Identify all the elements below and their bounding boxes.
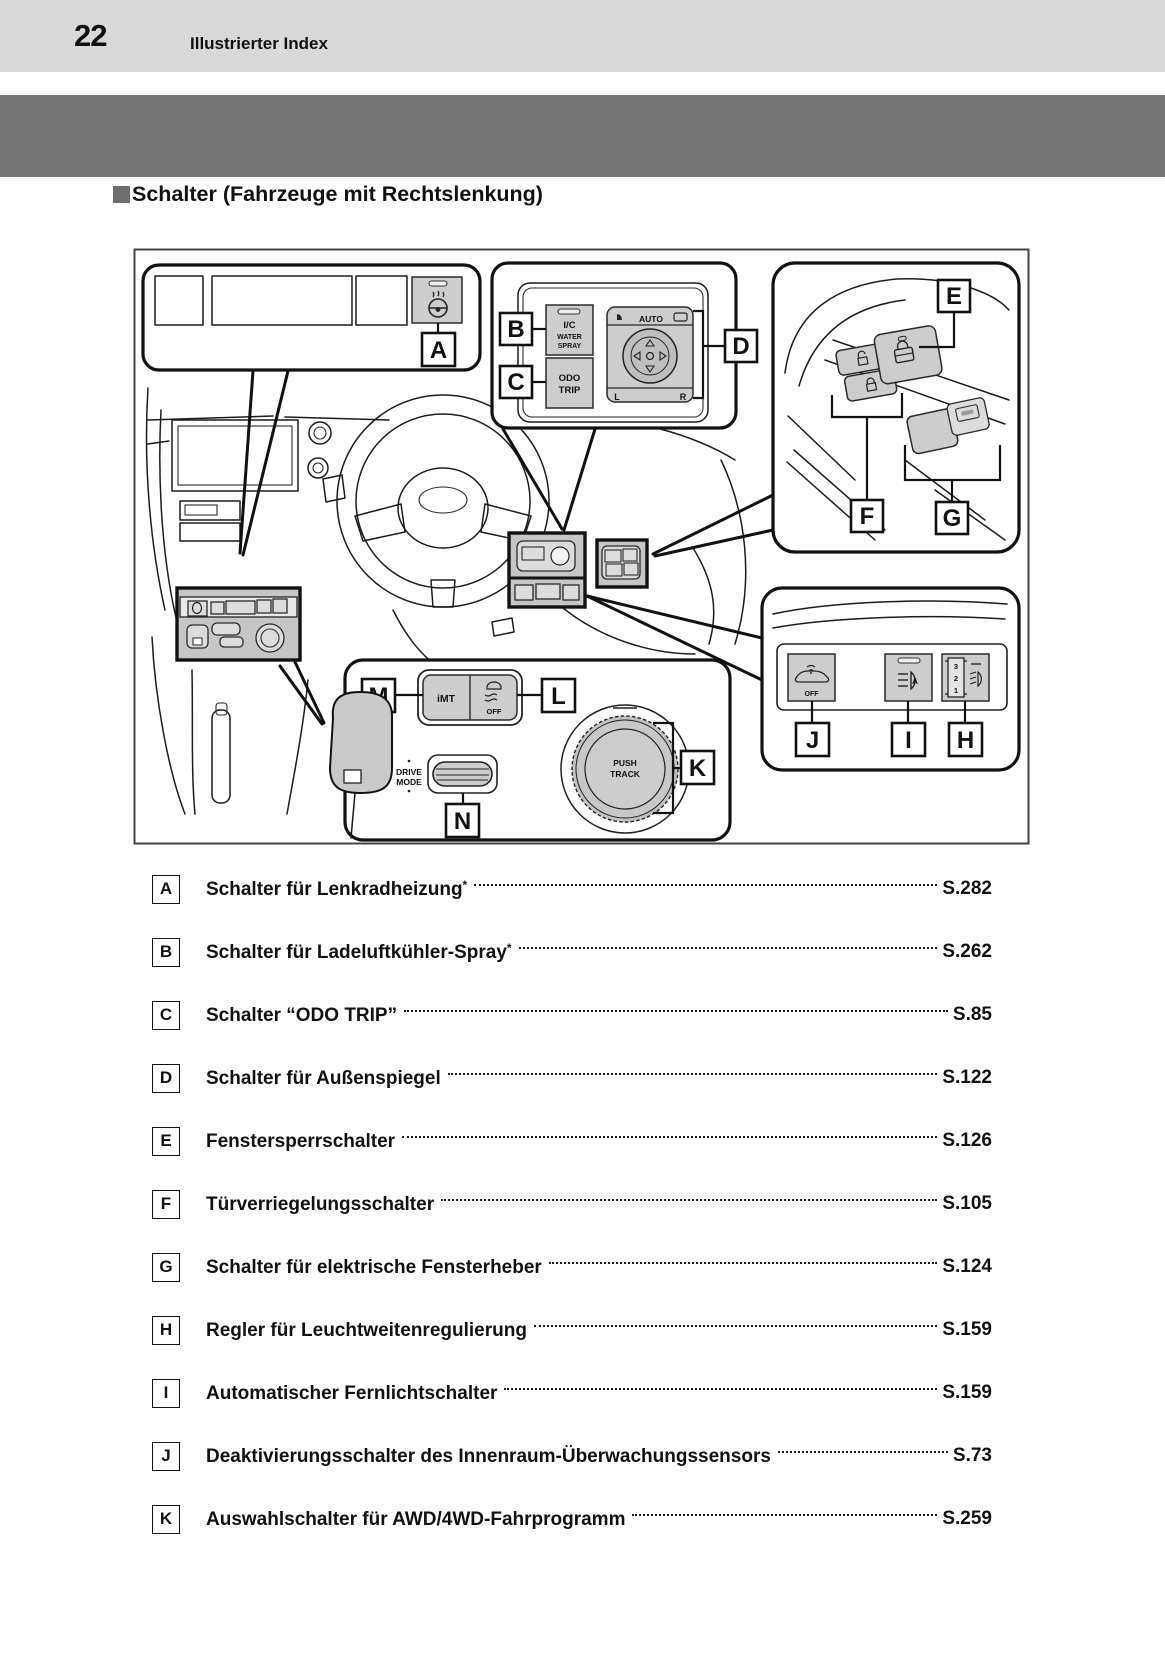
svg-text:2: 2 — [954, 674, 958, 683]
callout-label-K: K — [681, 751, 714, 784]
manual-page: 22 Illustrierter Index Schalter (Fahrzeu… — [0, 0, 1165, 1653]
callout-label-L: L — [542, 679, 575, 712]
dot-leader — [448, 1072, 938, 1075]
item-label: Schalter für elektrische Fensterheber — [206, 1257, 542, 1278]
svg-text:ODO: ODO — [559, 373, 581, 384]
callout-label-H: H — [949, 723, 982, 756]
dot-leader — [404, 1009, 948, 1012]
auto-high-beam-switch: A — [885, 654, 932, 701]
dot-leader — [402, 1135, 937, 1138]
console-climate-panel — [177, 588, 300, 660]
item-page-ref: S.105 — [942, 1193, 992, 1215]
intrusion-sensor-off-switch: OFF — [788, 654, 835, 701]
callout-label-F: F — [851, 500, 883, 532]
item-label: Schalter “ODO TRIP” — [206, 1005, 397, 1026]
callout-box-steering-right: I/C WATER SPRAY ODO TRIP AUTO — [492, 263, 757, 428]
indicator-lamp — [429, 281, 447, 286]
svg-text:A: A — [912, 677, 918, 686]
column-switch-panel-left — [509, 533, 585, 607]
item-page-ref: S.124 — [942, 1256, 992, 1278]
svg-text:L: L — [614, 392, 620, 402]
list-item: G Schalter für elektrische Fensterheber … — [152, 1250, 992, 1284]
callout-box-instrument-panel: A — [143, 265, 480, 370]
item-key: G — [152, 1253, 180, 1282]
callout-label-J: J — [796, 723, 829, 756]
svg-text:1: 1 — [954, 686, 958, 695]
item-label: Schalter für Ladeluftkühler-Spray — [206, 942, 507, 963]
callout-box-lower-dash: OFF A 3 2 1 — [762, 588, 1019, 770]
svg-text:H: H — [957, 727, 974, 754]
callout-label-A: A — [422, 333, 455, 366]
item-page-ref: S.262 — [942, 941, 992, 963]
switch-location-diagram: A I/C WATER SPRAY ODO TRIP — [133, 248, 1030, 848]
item-label: Deaktivierungsschalter des Innenraum-Übe… — [206, 1446, 771, 1467]
item-label: Automatischer Fernlichtschalter — [206, 1383, 497, 1404]
mirror-control-switch: AUTO L R — [607, 307, 693, 402]
list-item: D Schalter für Außenspiegel S.122 — [152, 1061, 992, 1095]
item-key: K — [152, 1505, 180, 1534]
svg-text:AUTO: AUTO — [639, 314, 663, 324]
svg-text:J: J — [806, 727, 819, 754]
section-heading-text: Schalter (Fahrzeuge mit Rechtslenkung) — [132, 182, 543, 207]
item-page-ref: S.159 — [942, 1319, 992, 1341]
callout-box-door-panel: E F G — [773, 263, 1019, 552]
item-key: H — [152, 1316, 180, 1345]
item-page-ref: S.259 — [942, 1508, 992, 1530]
callout-label-B: B — [500, 313, 532, 345]
svg-text:F: F — [860, 503, 875, 530]
svg-text:SPRAY: SPRAY — [558, 343, 582, 350]
item-page-ref: S.126 — [942, 1130, 992, 1152]
callout-box-center-console: iMT OFF M L DRIVE MODE — [345, 660, 730, 840]
callout-label-E: E — [938, 280, 970, 312]
item-key: D — [152, 1064, 180, 1093]
item-page-ref: S.85 — [953, 1004, 992, 1026]
list-item: A Schalter für Lenkradheizung* S.282 — [152, 872, 992, 906]
item-page-ref: S.122 — [942, 1067, 992, 1089]
item-key: A — [152, 875, 180, 904]
list-item: H Regler für Leuchtweitenregulierung S.1… — [152, 1313, 992, 1347]
dot-leader — [441, 1198, 937, 1201]
svg-text:I/C: I/C — [563, 320, 575, 331]
section-title: Illustrierter Index — [190, 34, 328, 54]
steering-heater-switch — [412, 277, 462, 323]
square-bullet-icon — [113, 186, 130, 203]
footnote-asterisk: * — [463, 878, 468, 892]
item-page-ref: S.159 — [942, 1382, 992, 1404]
callout-label-C: C — [500, 366, 532, 398]
footnote-asterisk: * — [507, 941, 512, 955]
item-key: C — [152, 1001, 180, 1030]
item-key: F — [152, 1190, 180, 1219]
callout-label-G: G — [936, 502, 968, 534]
page-number: 22 — [74, 18, 106, 54]
item-label: Türverriegelungsschalter — [206, 1194, 434, 1215]
svg-text:WATER: WATER — [557, 334, 582, 341]
dot-leader — [549, 1261, 938, 1264]
svg-text:A: A — [430, 337, 447, 364]
svg-text:C: C — [507, 369, 524, 396]
chapter-banner — [0, 95, 1165, 177]
svg-text:3: 3 — [954, 662, 958, 671]
page-header: 22 Illustrierter Index — [0, 0, 1165, 72]
dot-leader — [632, 1513, 937, 1516]
list-item: C Schalter “ODO TRIP” S.85 — [152, 998, 992, 1032]
svg-text:I: I — [905, 727, 912, 754]
svg-text:E: E — [946, 283, 962, 310]
item-key: J — [152, 1442, 180, 1471]
section-heading: Schalter (Fahrzeuge mit Rechtslenkung) — [113, 182, 543, 207]
item-key: E — [152, 1127, 180, 1156]
item-label: Fenstersperrschalter — [206, 1131, 395, 1152]
dot-leader — [504, 1387, 937, 1390]
svg-text:B: B — [507, 316, 524, 343]
svg-text:N: N — [454, 808, 471, 835]
dot-leader — [534, 1324, 937, 1327]
item-label: Regler für Leuchtweitenregulierung — [206, 1320, 527, 1341]
list-item: J Deaktivierungsschalter des Innenraum-Ü… — [152, 1439, 992, 1473]
dot-leader — [519, 946, 938, 949]
imt-vsc-switch: iMT OFF — [418, 670, 522, 725]
list-item: I Automatischer Fernlichtschalter S.159 — [152, 1376, 992, 1410]
svg-text:L: L — [551, 683, 566, 710]
svg-text:G: G — [943, 505, 962, 532]
item-page-ref: S.282 — [942, 878, 992, 900]
callout-label-D: D — [725, 330, 757, 362]
odo-trip-switch: ODO TRIP — [546, 358, 593, 408]
headlight-leveling-dial: 3 2 1 — [942, 654, 989, 701]
intercooler-spray-switch: I/C WATER SPRAY — [546, 305, 593, 355]
svg-text:R: R — [680, 392, 687, 402]
list-item: K Auswahlschalter für AWD/4WD-Fahrprogra… — [152, 1502, 992, 1536]
svg-text:iMT: iMT — [437, 693, 456, 705]
window-lock-switch — [873, 325, 943, 385]
dot-leader — [778, 1450, 948, 1453]
callout-label-N: N — [446, 804, 479, 837]
list-item: F Türverriegelungsschalter S.105 — [152, 1187, 992, 1221]
item-label: Schalter für Außenspiegel — [206, 1068, 441, 1089]
item-label: Schalter für Lenkradheizung — [206, 879, 463, 900]
svg-text:K: K — [689, 755, 707, 782]
svg-text:OFF: OFF — [487, 707, 502, 716]
list-item: B Schalter für Ladeluftkühler-Spray* S.2… — [152, 935, 992, 969]
column-switch-panel-right — [597, 540, 647, 587]
item-key: I — [152, 1379, 180, 1408]
dot-leader — [474, 883, 937, 886]
svg-text:MODE: MODE — [396, 777, 422, 787]
item-key: B — [152, 938, 180, 967]
svg-text:OFF: OFF — [805, 691, 820, 698]
callout-label-I: I — [892, 723, 925, 756]
list-item: E Fenstersperrschalter S.126 — [152, 1124, 992, 1158]
svg-text:TRIP: TRIP — [559, 385, 581, 396]
svg-text:TRACK: TRACK — [610, 769, 641, 779]
svg-text:DRIVE: DRIVE — [396, 767, 422, 777]
svg-text:D: D — [732, 333, 749, 360]
item-page-ref: S.73 — [953, 1445, 992, 1467]
svg-text:PUSH: PUSH — [613, 758, 637, 768]
item-label: Auswahlschalter für AWD/4WD-Fahrprogramm — [206, 1509, 625, 1530]
